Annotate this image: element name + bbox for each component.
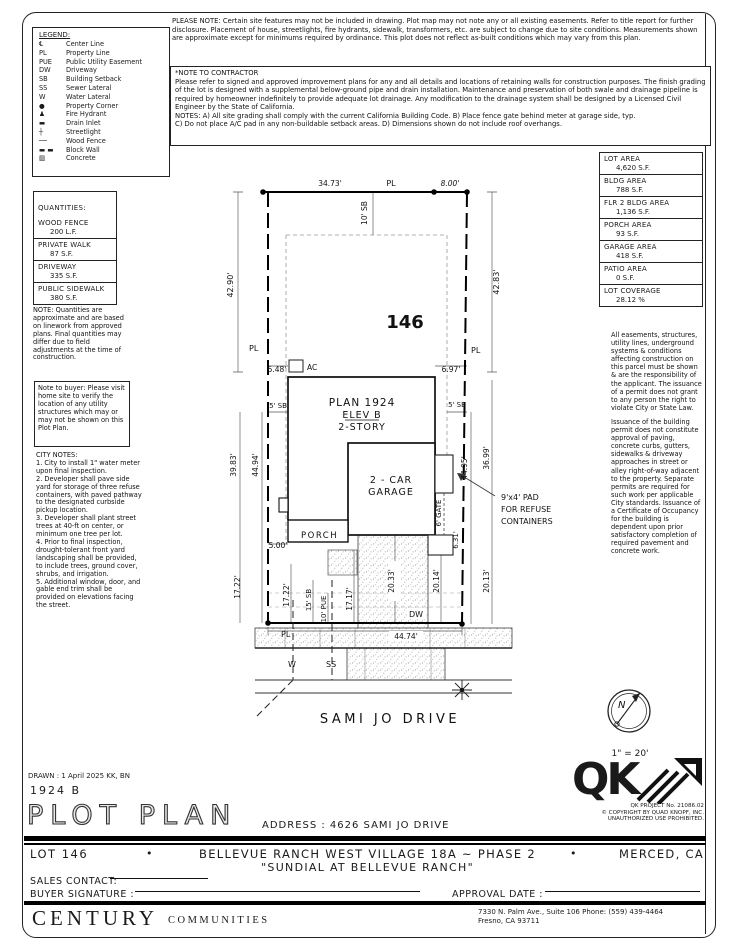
street-name-label: SAMI JO DRIVE xyxy=(320,712,460,727)
garage-label-1: 2 - CAR xyxy=(370,475,412,486)
area-value: 4,620 S.F. xyxy=(604,164,699,173)
dim-ac-right-label: 6.97' xyxy=(442,365,461,374)
city-notes: CITY NOTES: 1. City to install 1" water … xyxy=(36,452,142,610)
sb-rear-label: 10' SB xyxy=(360,201,369,225)
legend-item: DWDriveway xyxy=(39,67,167,75)
north-compass: N xyxy=(596,678,664,746)
dim-front-3-label: 17.17' xyxy=(345,587,354,611)
plan-name-label: PLAN 1924 xyxy=(329,397,396,409)
garage-label-2: GARAGE xyxy=(368,487,414,498)
private-walk-concrete xyxy=(328,550,357,575)
area-row: GARAGE AREA418 S.F. xyxy=(600,240,702,262)
right-note-1: All easements, structures, utility lines… xyxy=(611,331,702,412)
legend-item: SBBuilding Setback xyxy=(39,76,167,84)
street-lines xyxy=(255,680,512,693)
dim-front-1-label: 17.22' xyxy=(233,575,242,599)
dim-ac-left-label: 5.48' xyxy=(268,365,287,374)
dim-drive-label: 20.33' xyxy=(387,569,396,593)
public-utility-easement-symbol: PUE xyxy=(39,59,66,67)
area-row: BLDG AREA788 S.F. xyxy=(600,174,702,196)
sb-side-left-label: 5' SB xyxy=(269,402,287,410)
area-value: 93 S.F. xyxy=(604,230,699,239)
area-value: 1,136 S.F. xyxy=(604,208,699,217)
gate-label: 6' GATE xyxy=(435,500,443,527)
legend-item: ♟Fire Hydrant xyxy=(39,111,167,119)
refuse-note-line1: 9'x4' PAD xyxy=(501,493,539,502)
quantity-value: 380 S.F. xyxy=(38,294,113,303)
buyer-note: Note to buyer: Please visit home site to… xyxy=(38,385,126,432)
area-row: PATIO AREA0 S.F. xyxy=(600,262,702,284)
property-line-symbol: PL xyxy=(39,50,66,58)
areas-rows: LOT AREA4,620 S.F.BLDG AREA788 S.F.FLR 2… xyxy=(600,153,702,306)
area-label: BLDG AREA xyxy=(604,177,699,186)
quantity-row: WOOD FENCE200 L.F. xyxy=(34,217,116,238)
side-pad xyxy=(428,535,453,555)
driveway-apron-concrete xyxy=(347,648,445,680)
legend-label: Drain Inlet xyxy=(66,120,101,128)
quantities-table: QUANTITIES: WOOD FENCE200 L.F.PRIVATE WA… xyxy=(33,191,117,305)
quantity-row: DRIVEWAY335 S.F. xyxy=(34,260,116,282)
quantities-note: NOTE: Quantities are approximate and are… xyxy=(33,307,125,362)
qk-logo: QK QK PROJECT No. 21086.02 © COPYRIGHT B… xyxy=(572,760,704,823)
ac-pad xyxy=(289,360,303,372)
pl-right-label: PL xyxy=(471,346,481,355)
qk-caption-2: © COPYRIGHT BY QUAD KNOPF, INC. xyxy=(572,810,704,817)
legend-label: Fire Hydrant xyxy=(66,111,106,119)
quantities-title: QUANTITIES: xyxy=(38,204,86,212)
approval-date-label: APPROVAL DATE : xyxy=(452,889,543,900)
legend-label: Concrete xyxy=(66,155,96,163)
quantity-label: DRIVEWAY xyxy=(38,263,113,272)
legend-item: SSSewer Lateral xyxy=(39,85,167,93)
quantity-label: PUBLIC SIDEWALK xyxy=(38,285,113,294)
area-row: FLR 2 BLDG AREA1,136 S.F. xyxy=(600,196,702,218)
area-label: PATIO AREA xyxy=(604,265,699,274)
water-lateral-symbol: W xyxy=(39,94,66,102)
water-label: W xyxy=(288,660,296,669)
dim-right-inner-label: 44.95' xyxy=(460,456,469,480)
area-value: 28.12 % xyxy=(604,296,699,305)
bullet-2: • xyxy=(570,847,577,860)
legend-item: ℄Center Line xyxy=(39,41,167,49)
contractor-note-title: *NOTE TO CONTRACTOR xyxy=(175,69,706,78)
plot-plan-document: PLEASE NOTE: Certain site features may n… xyxy=(0,0,729,946)
legend-items: ℄Center LinePLProperty LinePUEPublic Uti… xyxy=(39,41,167,163)
quantity-value: 335 S.F. xyxy=(38,272,113,281)
legend-label: Water Lateral xyxy=(66,94,111,102)
pl-top-label: PL xyxy=(386,179,396,188)
contractor-note-b: C) Do not place A/C pad in any non-build… xyxy=(175,120,706,129)
inner-right-rule xyxy=(705,14,706,934)
water-lateral-line xyxy=(257,600,293,716)
qk-logo-letters: QK xyxy=(572,754,638,805)
area-value: 0 S.F. xyxy=(604,274,699,283)
tract-label: BELLEVUE RANCH WEST VILLAGE 18A ~ PHASE … xyxy=(170,847,565,861)
refuse-pad xyxy=(435,455,453,493)
dim-porch-label: 5.00' xyxy=(269,541,288,550)
rule-bottom xyxy=(24,901,706,905)
quantity-label: PRIVATE WALK xyxy=(38,241,113,250)
brand-sub: COMMUNITIES xyxy=(168,915,270,926)
drain-inlet-symbol: ▬ xyxy=(39,120,66,128)
dim-right-side-label: 42.83' xyxy=(492,269,501,294)
legend-label: Building Setback xyxy=(66,76,121,84)
legend-label: Driveway xyxy=(66,67,97,75)
property-corner-dot xyxy=(459,621,465,627)
contractor-note-a: NOTES: A) All site grading shall comply … xyxy=(175,112,706,121)
legend-item: ▨Concrete xyxy=(39,155,167,163)
north-label: N xyxy=(618,700,626,711)
city-notes-list: 1. City to install 1" water meter upon f… xyxy=(36,460,142,610)
quantity-label: WOOD FENCE xyxy=(38,219,113,228)
rule-thick xyxy=(24,836,706,841)
dim-front-5-label: 20.13' xyxy=(482,569,491,593)
areas-table: LOT AREA4,620 S.F.BLDG AREA788 S.F.FLR 2… xyxy=(599,152,703,307)
dim-right-outer-label: 36.99' xyxy=(482,446,491,470)
buyer-signature-label: BUYER SIGNATURE : xyxy=(30,889,134,900)
brand-name: CENTURY xyxy=(32,906,158,931)
plan-story-label: 2-STORY xyxy=(338,422,386,433)
sales-contact-line xyxy=(110,878,208,879)
dim-left-side-label: 42.90' xyxy=(226,272,235,297)
sales-contact-label: SALES CONTACT: xyxy=(30,876,117,887)
area-value: 418 S.F. xyxy=(604,252,699,261)
center-line-symbol: ℄ xyxy=(39,41,66,49)
dim-gate-label: 6.31' xyxy=(452,531,460,549)
legend-title: LEGEND: xyxy=(39,31,167,39)
area-row: LOT AREA4,620 S.F. xyxy=(600,153,702,174)
plot-drawing: 34.73' PL 8.00' 42.90' 42.83' 10' SB 146… xyxy=(225,150,565,735)
wood-fence-symbol: ── xyxy=(39,138,66,146)
dim-front-2-label: 17.22' xyxy=(282,583,291,607)
ac-label: AC xyxy=(307,363,317,372)
dim-left-inner-label: 44.94' xyxy=(251,453,260,477)
legend-label: Streetlight xyxy=(66,129,101,137)
dim-front-4-label: 20.14' xyxy=(432,569,441,593)
legend-item: PLProperty Line xyxy=(39,50,167,58)
legend-label: Property Line xyxy=(66,50,110,58)
plan-elev-label: ELEV B xyxy=(342,410,381,421)
area-label: FLR 2 BLDG AREA xyxy=(604,199,699,208)
legend-item: ▬Drain Inlet xyxy=(39,120,167,128)
driveway-symbol: DW xyxy=(39,67,66,75)
area-value: 788 S.F. xyxy=(604,186,699,195)
legend-box: LEGEND: ℄Center LinePLProperty LinePUEPu… xyxy=(32,27,170,177)
building-setback-symbol: SB xyxy=(39,76,66,84)
streetlight-symbol xyxy=(452,680,472,700)
city-note-item: 2. Developer shall pave side yard for st… xyxy=(36,476,142,516)
sheet-title: PLOT PLAN xyxy=(27,800,237,831)
city-note-item: 4. Prior to final inspection, drought-to… xyxy=(36,539,142,579)
compass-outer-circle xyxy=(608,690,650,732)
rule-thin xyxy=(24,843,706,845)
house-step xyxy=(279,498,288,512)
footer-address: 7330 N. Palm Ave., Suite 106 Phone: (559… xyxy=(478,908,704,926)
legend-label: Block Wall xyxy=(66,147,100,155)
dim-left-outer-label: 39.83' xyxy=(229,453,238,477)
legend-label: Center Line xyxy=(66,41,104,49)
sb-side-right-label: 5' SB xyxy=(448,401,466,409)
property-corner-symbol: ● xyxy=(39,103,66,111)
area-row: LOT COVERAGE28.12 % xyxy=(600,284,702,306)
quantity-row: PUBLIC SIDEWALK380 S.F. xyxy=(34,282,116,304)
area-label: LOT AREA xyxy=(604,155,699,164)
legend-label: Wood Fence xyxy=(66,138,106,146)
sb-front-label: 15' SB xyxy=(305,589,313,612)
legend-item: WWater Lateral xyxy=(39,94,167,102)
city-note-item: 5. Additional window, door, and gable en… xyxy=(36,579,142,611)
legend-item: ▬ ▬Block Wall xyxy=(39,147,167,155)
lot-number-label: 146 xyxy=(386,312,424,333)
bullet-1: • xyxy=(146,847,153,860)
pue-label: 10' PUE xyxy=(320,596,328,623)
lot-label: LOT 146 xyxy=(30,847,88,861)
footer-address-line2: Fresno, CA 93711 xyxy=(478,917,704,926)
city-note-item: 1. City to install 1" water meter upon f… xyxy=(36,460,142,476)
subtitle: "SUNDIAL AT BELLEVUE RANCH" xyxy=(180,861,555,874)
address-label: ADDRESS : 4626 SAMI JO DRIVE xyxy=(262,820,449,831)
area-row: PORCH AREA93 S.F. xyxy=(600,218,702,240)
buyer-note-box: Note to buyer: Please visit home site to… xyxy=(34,381,130,447)
city-label: MERCED, CA xyxy=(594,847,704,861)
buyer-signature-line xyxy=(135,891,420,892)
pl-bottom-label: PL xyxy=(281,630,291,639)
drawn-label: DRAWN : 1 April 2025 KK, BN xyxy=(28,772,130,780)
legend-item: ●Property Corner xyxy=(39,103,167,111)
compass-inner-circle xyxy=(612,694,647,729)
area-label: PORCH AREA xyxy=(604,221,699,230)
refuse-note-line2: FOR REFUSE xyxy=(501,505,551,514)
quantity-row: PRIVATE WALK87 S.F. xyxy=(34,238,116,260)
legend-label: Public Utility Easement xyxy=(66,59,142,67)
quantity-value: 87 S.F. xyxy=(38,250,113,259)
legend-label: Property Corner xyxy=(66,103,118,111)
legend-item: ──Wood Fence xyxy=(39,138,167,146)
fire-hydrant-symbol: ♟ xyxy=(39,111,66,119)
right-note-2: Issuance of the building permit does not… xyxy=(611,418,702,556)
qk-logo-arrow-icon xyxy=(634,758,704,804)
dim-top-right-label: 8.00' xyxy=(441,179,460,188)
block-wall-symbol: ▬ ▬ xyxy=(39,147,66,155)
plan-number: 1924 B xyxy=(30,784,81,797)
dw-label: DW xyxy=(409,610,423,619)
sewer-lateral-symbol: SS xyxy=(39,85,66,93)
footer-address-line1: 7330 N. Palm Ave., Suite 106 Phone: (559… xyxy=(478,908,704,917)
contractor-note-body: Please refer to signed and approved impr… xyxy=(175,78,706,112)
dim-top-left-label: 34.73' xyxy=(318,179,342,188)
porch-label: PORCH xyxy=(301,531,338,541)
streetlight-symbol: ┼ xyxy=(39,129,66,137)
legend-item: PUEPublic Utility Easement xyxy=(39,59,167,67)
area-label: GARAGE AREA xyxy=(604,243,699,252)
top-note: PLEASE NOTE: Certain site features may n… xyxy=(172,17,702,43)
refuse-note-line3: CONTAINERS xyxy=(501,517,553,526)
legend-label: Sewer Lateral xyxy=(66,85,111,93)
contractor-note-box: *NOTE TO CONTRACTOR Please refer to sign… xyxy=(170,66,711,146)
right-notes: All easements, structures, utility lines… xyxy=(611,331,702,556)
approval-date-line xyxy=(545,891,700,892)
legend-item: ┼Streetlight xyxy=(39,129,167,137)
property-corner-dot xyxy=(260,189,266,195)
property-corner-dot xyxy=(464,189,470,195)
quantity-value: 200 L.F. xyxy=(38,228,113,237)
property-corner-dot xyxy=(265,620,271,626)
dim-frontage-label: 44.74' xyxy=(394,632,418,641)
qk-caption-3: UNAUTHORIZED USE PROHIBITED. xyxy=(572,816,704,823)
pl-left-label: PL xyxy=(249,344,259,353)
concrete-symbol: ▨ xyxy=(39,155,66,163)
sewer-label: SS xyxy=(326,660,336,669)
area-label: LOT COVERAGE xyxy=(604,287,699,296)
city-note-item: 3. Developer shall plant street trees at… xyxy=(36,515,142,539)
property-corner-dot xyxy=(431,189,437,195)
quantities-rows: WOOD FENCE200 L.F.PRIVATE WALK87 S.F.DRI… xyxy=(34,217,116,304)
